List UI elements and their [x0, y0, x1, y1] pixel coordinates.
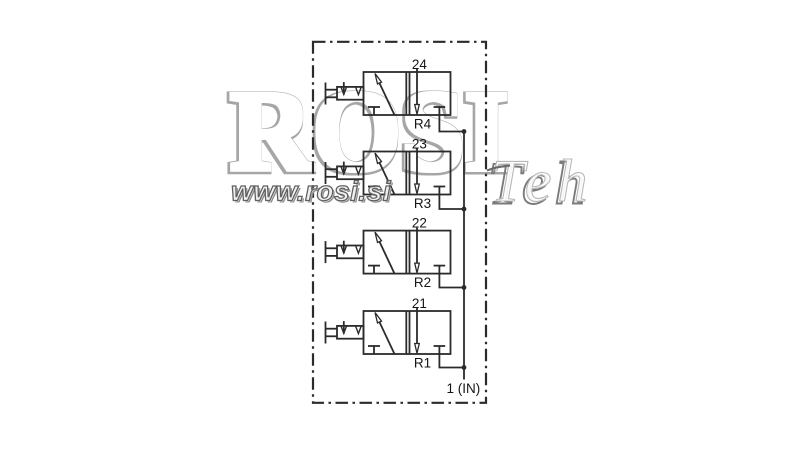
svg-text:www.rosi.si: www.rosi.si	[231, 176, 392, 207]
svg-text:22: 22	[412, 215, 427, 230]
svg-text:21: 21	[412, 296, 427, 311]
svg-text:R1: R1	[414, 356, 431, 371]
svg-text:Teh: Teh	[491, 148, 594, 214]
svg-text:R3: R3	[414, 196, 431, 211]
svg-text:23: 23	[412, 136, 427, 151]
svg-text:R4: R4	[414, 117, 432, 132]
svg-text:1 (IN): 1 (IN)	[447, 381, 481, 396]
svg-text:24: 24	[412, 57, 428, 72]
svg-text:R2: R2	[414, 275, 431, 290]
